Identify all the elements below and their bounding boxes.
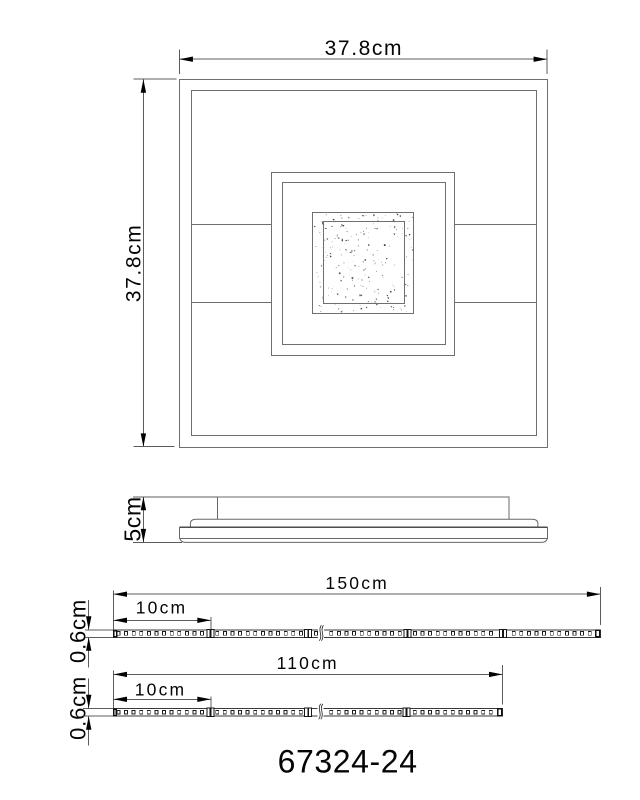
svg-text:67324-24: 67324-24 xyxy=(278,744,418,780)
svg-text:10cm: 10cm xyxy=(136,598,188,618)
svg-text:10cm: 10cm xyxy=(135,680,187,700)
svg-text:110cm: 110cm xyxy=(277,653,339,673)
svg-text:150cm: 150cm xyxy=(325,573,389,593)
svg-text:37.8cm: 37.8cm xyxy=(123,224,146,302)
svg-text:5cm: 5cm xyxy=(119,496,145,542)
svg-text:0.6cm: 0.6cm xyxy=(65,599,90,663)
svg-text:37.8cm: 37.8cm xyxy=(325,37,403,60)
